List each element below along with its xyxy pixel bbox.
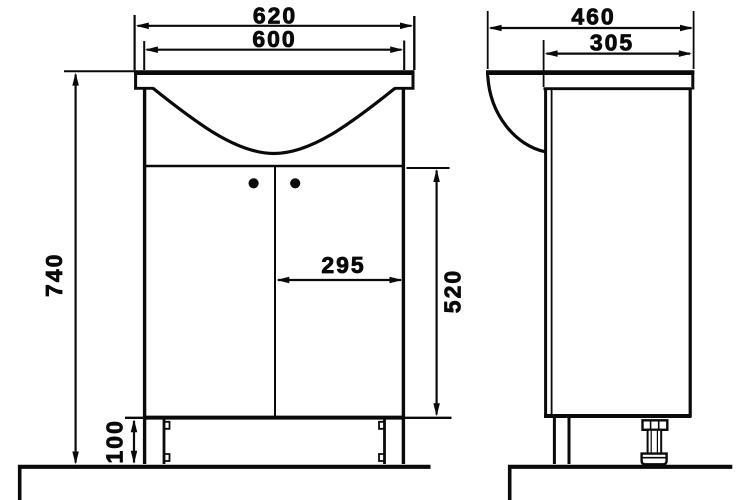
svg-text:295: 295 xyxy=(321,252,365,278)
svg-text:460: 460 xyxy=(571,4,615,30)
svg-text:100: 100 xyxy=(102,419,128,463)
svg-text:520: 520 xyxy=(440,269,466,313)
svg-text:600: 600 xyxy=(252,26,296,52)
svg-text:305: 305 xyxy=(590,29,634,55)
svg-text:740: 740 xyxy=(41,253,67,297)
svg-text:620: 620 xyxy=(253,2,297,28)
